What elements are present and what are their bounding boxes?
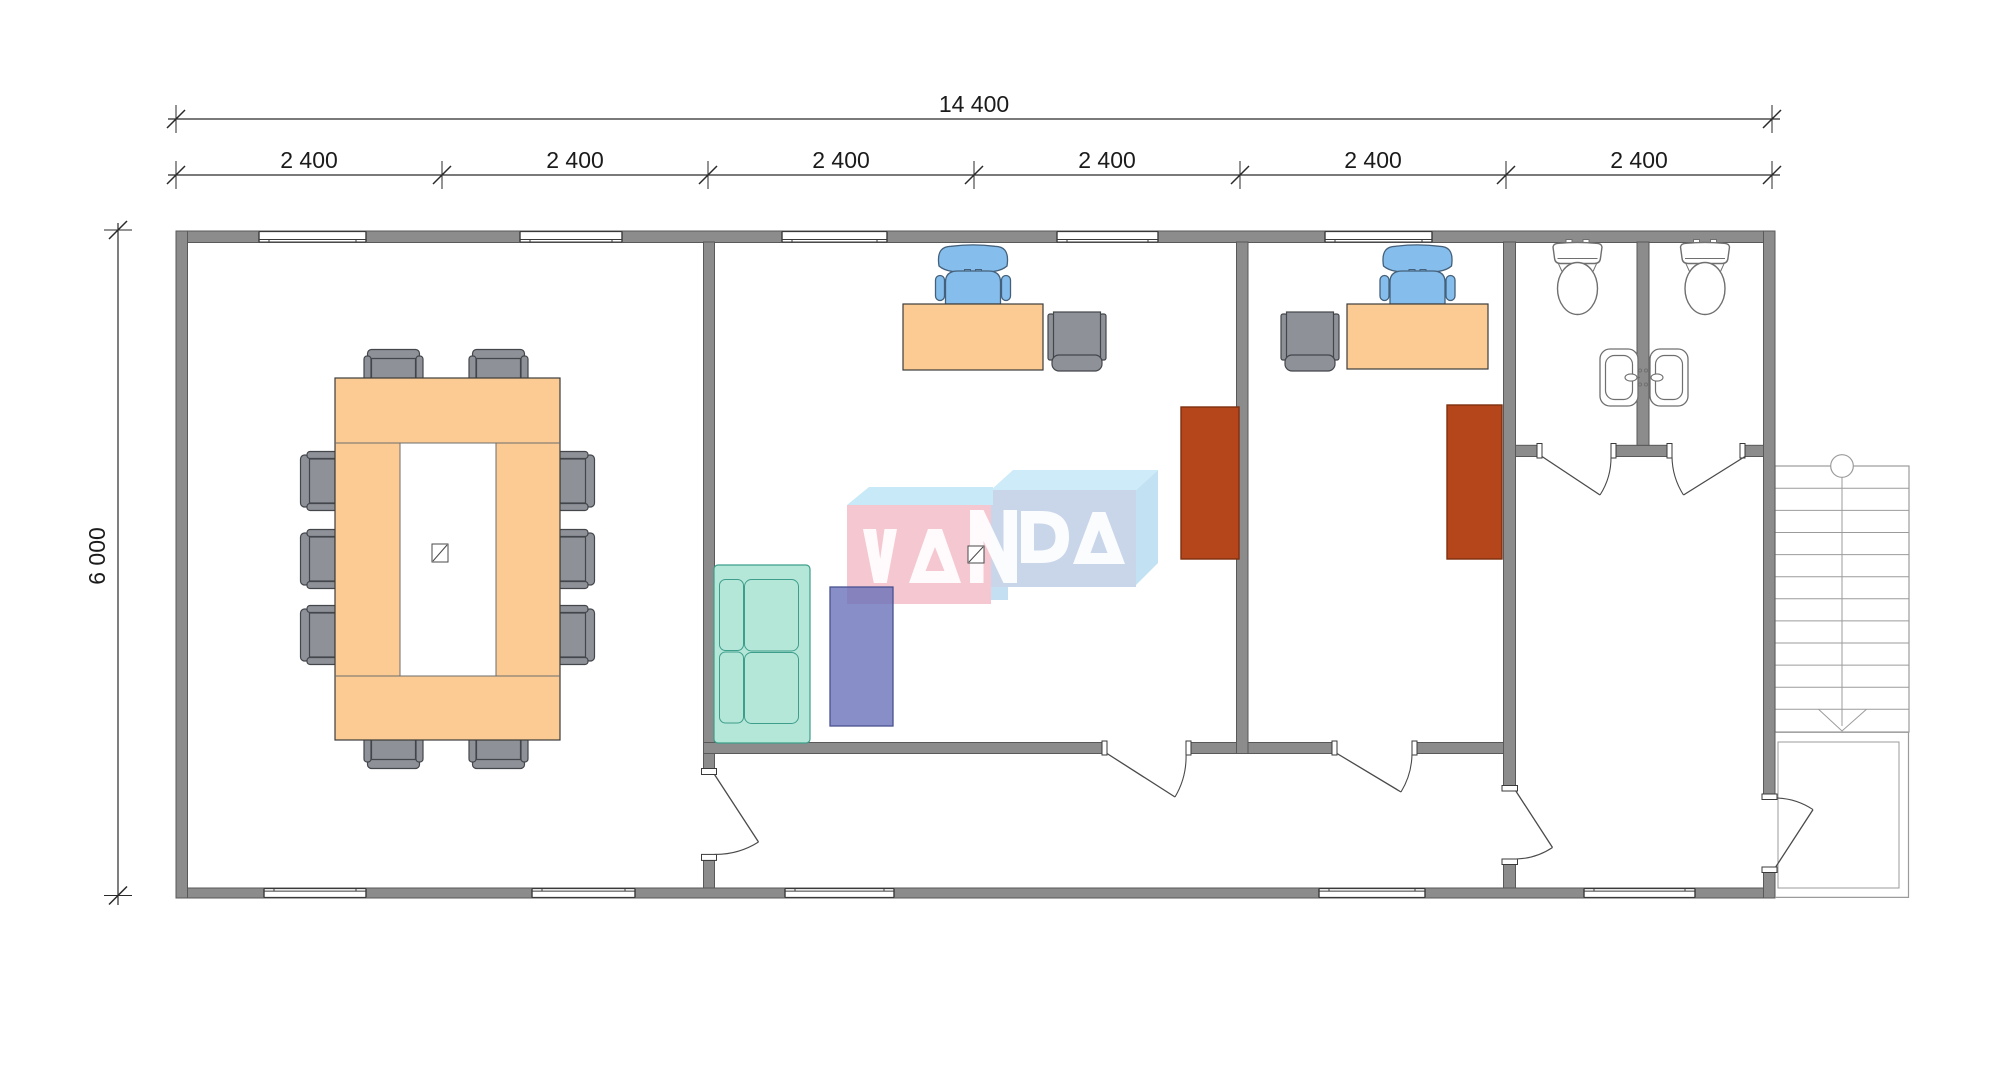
svg-text:2 400: 2 400 [812, 147, 870, 173]
svg-text:2 400: 2 400 [1610, 147, 1668, 173]
svg-text:2 400: 2 400 [280, 147, 338, 173]
svg-text:6 000: 6 000 [84, 527, 110, 585]
svg-text:2 400: 2 400 [1344, 147, 1402, 173]
svg-text:14 400: 14 400 [939, 91, 1009, 117]
svg-text:2 400: 2 400 [546, 147, 604, 173]
svg-text:2 400: 2 400 [1078, 147, 1136, 173]
